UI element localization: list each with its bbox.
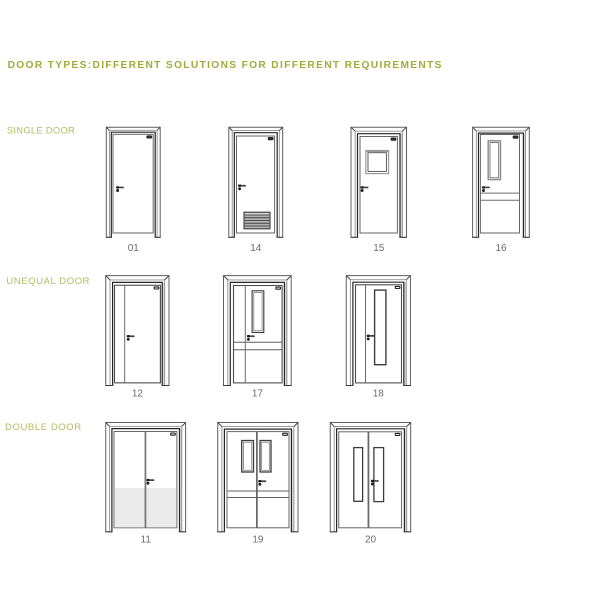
svg-text:17: 17 xyxy=(252,389,264,400)
svg-text:11: 11 xyxy=(141,535,152,546)
svg-text:DOUBLE DOOR: DOUBLE DOOR xyxy=(5,422,82,433)
svg-text:12: 12 xyxy=(132,389,144,400)
svg-text:SINGLE DOOR: SINGLE DOOR xyxy=(7,125,75,136)
svg-text:16: 16 xyxy=(495,243,507,254)
svg-text:19: 19 xyxy=(252,535,264,546)
svg-text:01: 01 xyxy=(128,243,140,254)
svg-text:20: 20 xyxy=(365,535,377,546)
svg-text:15: 15 xyxy=(373,243,385,254)
svg-text:DOOR TYPES:DIFFERENT SOLUTIONS: DOOR TYPES:DIFFERENT SOLUTIONS FOR DIFFE… xyxy=(8,60,443,71)
svg-text:18: 18 xyxy=(373,389,385,400)
svg-text:UNEQUAL DOOR: UNEQUAL DOOR xyxy=(6,276,90,287)
svg-text:14: 14 xyxy=(250,243,262,254)
